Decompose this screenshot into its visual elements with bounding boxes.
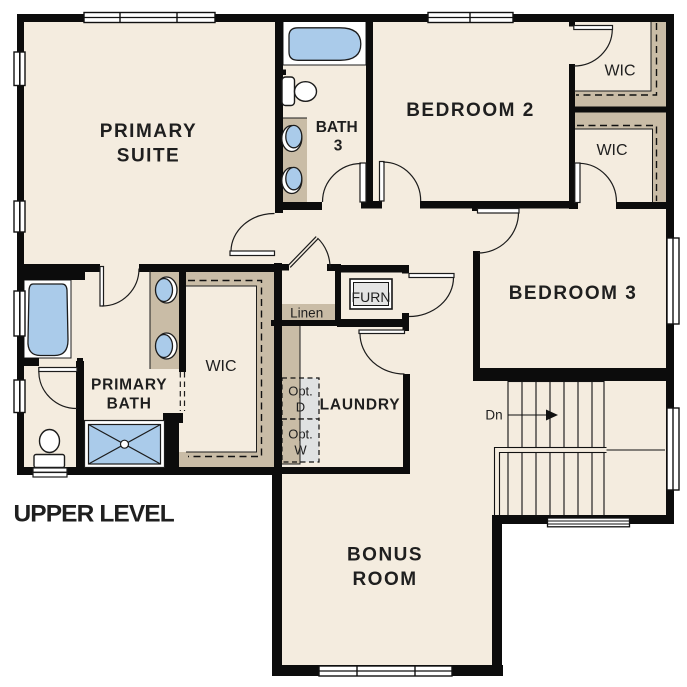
svg-text:PRIMARY: PRIMARY bbox=[91, 377, 168, 394]
svg-text:BATH: BATH bbox=[107, 396, 152, 413]
svg-text:WIC: WIC bbox=[596, 142, 627, 159]
svg-text:D: D bbox=[296, 400, 305, 415]
svg-text:LAUNDRY: LAUNDRY bbox=[320, 397, 401, 414]
svg-text:Opt.: Opt. bbox=[288, 384, 313, 399]
svg-text:WIC: WIC bbox=[205, 358, 236, 375]
svg-text:WIC: WIC bbox=[604, 63, 635, 80]
svg-text:W: W bbox=[294, 443, 307, 458]
svg-text:Opt.: Opt. bbox=[288, 427, 313, 442]
svg-text:BONUS: BONUS bbox=[347, 545, 423, 566]
svg-text:BEDROOM 3: BEDROOM 3 bbox=[509, 283, 638, 304]
svg-text:UPPER LEVEL: UPPER LEVEL bbox=[14, 501, 175, 528]
svg-text:3: 3 bbox=[334, 138, 343, 155]
svg-text:FURN: FURN bbox=[352, 289, 391, 305]
svg-text:PRIMARY: PRIMARY bbox=[100, 121, 197, 142]
svg-text:SUITE: SUITE bbox=[117, 145, 180, 166]
svg-text:BEDROOM 2: BEDROOM 2 bbox=[406, 100, 535, 121]
svg-text:BATH: BATH bbox=[316, 119, 358, 136]
svg-text:Dn: Dn bbox=[485, 408, 502, 423]
svg-text:ROOM: ROOM bbox=[352, 569, 417, 590]
svg-text:Linen: Linen bbox=[290, 306, 323, 321]
